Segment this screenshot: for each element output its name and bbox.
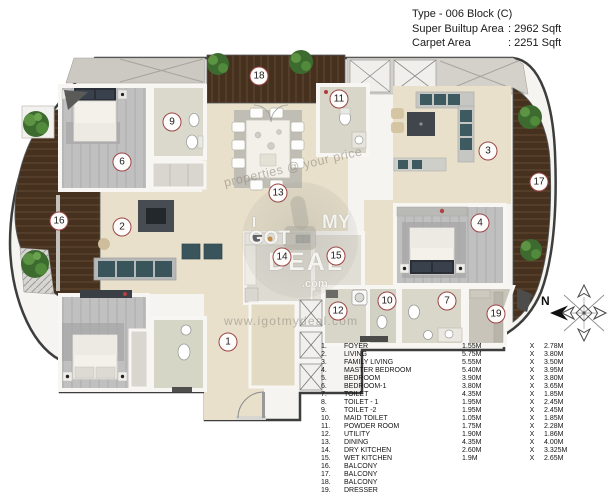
legend-row: 18.BALCONY	[321, 479, 606, 487]
super-builtup-label: Super Builtup Area	[412, 22, 508, 37]
legend-row: 14.DRY KITCHEN2.60MX3.325M	[321, 447, 606, 455]
legend-cell-num: 7.	[321, 391, 344, 399]
legend-cell-num: 15.	[321, 455, 344, 463]
legend-cell-x: X	[520, 375, 544, 383]
legend-cell-d2: 2.28M	[544, 423, 606, 431]
bedroom-room	[60, 290, 148, 390]
legend-cell-name: POWDER ROOM	[344, 423, 462, 431]
legend-cell-d1: 5.75M	[462, 351, 520, 359]
legend-cell-name: DRESSER	[344, 487, 462, 495]
legend-cell-num: 14.	[321, 447, 344, 455]
legend-cell-d1: 1.75M	[462, 423, 520, 431]
legend-cell-d2: 3.50M	[544, 359, 606, 367]
legend-cell-d1	[462, 487, 520, 495]
legend-cell-d1: 1.9M	[462, 455, 520, 463]
plant	[207, 53, 229, 75]
legend-cell-name: FAMILY LIVING	[344, 359, 462, 367]
legend-row: 12.UTILITY1.90MX1.86M	[321, 431, 606, 439]
legend-cell-name: LIVING	[344, 351, 462, 359]
legend-row: 2.LIVING5.75MX3.80M	[321, 351, 606, 359]
legend-cell-x: X	[520, 383, 544, 391]
entrance-lobby	[250, 303, 296, 387]
plant	[21, 250, 49, 278]
legend-cell-d1: 4.35M	[462, 391, 520, 399]
legend-row: 6.BEDROOM-13.80MX3.65M	[321, 383, 606, 391]
legend-cell-num: 8.	[321, 399, 344, 407]
plant	[289, 50, 313, 74]
plant	[520, 239, 542, 261]
legend-cell-d1: 1.95M	[462, 399, 520, 407]
legend-cell-x: X	[520, 343, 544, 351]
legend-cell-x: X	[520, 351, 544, 359]
legend-cell-num: 6.	[321, 383, 344, 391]
legend-cell-x: X	[520, 415, 544, 423]
carpet-area-label: Carpet Area	[412, 36, 508, 51]
legend-cell-x: X	[520, 439, 544, 447]
legend-cell-name: WET KITCHEN	[344, 455, 462, 463]
legend-cell-name: MASTER BEDROOM	[344, 367, 462, 375]
legend-cell-d1: 5.40M	[462, 367, 520, 375]
legend-cell-d1: 3.90M	[462, 375, 520, 383]
legend-row: 16.BALCONY	[321, 463, 606, 471]
legend-row: 9.TOILET -21.95MX2.45M	[321, 407, 606, 415]
north-compass-icon	[540, 283, 608, 343]
legend-cell-d2: 3.65M	[544, 383, 606, 391]
legend-row: 7.TOILET4.35MX1.85M	[321, 391, 606, 399]
legend-row: 17.BALCONY	[321, 471, 606, 479]
legend-cell-num: 1.	[321, 343, 344, 351]
legend-cell-x: X	[520, 455, 544, 463]
legend-row: 5.BEDROOM3.90MX3.80M	[321, 375, 606, 383]
legend-cell-num: 11.	[321, 423, 344, 431]
legend-cell-d2: 2.78M	[544, 343, 606, 351]
legend-row: 13.DINING4.35MX4.00M	[321, 439, 606, 447]
legend-cell-x: X	[520, 359, 544, 367]
legend-cell-num: 18.	[321, 479, 344, 487]
legend-cell-d2	[544, 463, 606, 471]
legend-cell-d1: 2.60M	[462, 447, 520, 455]
legend-cell-d1: 1.90M	[462, 431, 520, 439]
legend-cell-d2: 1.85M	[544, 415, 606, 423]
legend-cell-x: X	[520, 367, 544, 375]
legend-cell-name: BALCONY	[344, 471, 462, 479]
legend-cell-d2	[544, 487, 606, 495]
legend-cell-name: MAID TOILET	[344, 415, 462, 423]
plan-header: Type - 006 Block (C) Super Builtup Area …	[412, 7, 561, 51]
plant	[23, 111, 49, 137]
legend-cell-name: FOYER	[344, 343, 462, 351]
legend-row: 3.FAMILY LIVING5.55MX3.50M	[321, 359, 606, 367]
legend-cell-d2: 2.45M	[544, 399, 606, 407]
legend-cell-x: X	[520, 431, 544, 439]
legend-cell-num: 16.	[321, 463, 344, 471]
legend-cell-d2: 1.86M	[544, 431, 606, 439]
legend-cell-d1: 4.35M	[462, 439, 520, 447]
legend-cell-name: TOILET - 1	[344, 399, 462, 407]
legend-cell-d2: 3.80M	[544, 351, 606, 359]
service-band-left	[66, 58, 205, 83]
dresser-room	[467, 287, 513, 345]
legend-cell-d2: 2.65M	[544, 455, 606, 463]
legend-cell-x: X	[520, 399, 544, 407]
legend-cell-x: X	[520, 447, 544, 455]
legend-cell-x	[520, 471, 544, 479]
legend-cell-d1: 1.55M	[462, 343, 520, 351]
legend-cell-num: 13.	[321, 439, 344, 447]
legend-cell-d2: 4.00M	[544, 439, 606, 447]
toilet-room	[400, 287, 463, 345]
legend-row: 8.TOILET - 11.95MX2.45M	[321, 399, 606, 407]
floor-plan-page: { "header": { "line1": "Type - 006 Block…	[0, 0, 611, 500]
north-label: N	[541, 294, 550, 308]
legend-row: 15.WET KITCHEN1.9MX2.65M	[321, 455, 606, 463]
legend-cell-name: DINING	[344, 439, 462, 447]
legend-cell-d2	[544, 471, 606, 479]
legend-cell-d2: 2.45M	[544, 407, 606, 415]
legend-cell-num: 10.	[321, 415, 344, 423]
legend-row: 19.DRESSER	[321, 487, 606, 495]
powder-room	[318, 85, 368, 155]
closet	[130, 330, 148, 388]
legend-cell-num: 19.	[321, 487, 344, 495]
legend-cell-num: 5.	[321, 375, 344, 383]
legend-cell-x	[520, 487, 544, 495]
legend-cell-name: BALCONY	[344, 463, 462, 471]
legend-cell-num: 2.	[321, 351, 344, 359]
toilet-2-room	[152, 86, 205, 188]
legend-cell-num: 12.	[321, 431, 344, 439]
legend-cell-x: X	[520, 391, 544, 399]
legend-cell-d2: 1.85M	[544, 391, 606, 399]
legend-cell-x: X	[520, 423, 544, 431]
legend-cell-name: DRY KITCHEN	[344, 447, 462, 455]
legend-row: 11.POWDER ROOM1.75MX2.28M	[321, 423, 606, 431]
wardrobe	[152, 162, 205, 188]
legend-cell-d1	[462, 471, 520, 479]
threshold-step	[360, 336, 388, 342]
legend-cell-num: 3.	[321, 359, 344, 367]
legend-cell-d2: 3.80M	[544, 375, 606, 383]
master-bedroom-room	[395, 205, 505, 285]
legend-cell-num: 9.	[321, 407, 344, 415]
legend-cell-x	[520, 463, 544, 471]
legend-cell-d1	[462, 479, 520, 487]
legend-cell-name: TOILET	[344, 391, 462, 399]
legend-cell-d1	[462, 463, 520, 471]
legend-cell-name: BEDROOM	[344, 375, 462, 383]
super-builtup-value: : 2962 Sqft	[508, 22, 561, 37]
legend-cell-d2: 3.95M	[544, 367, 606, 375]
legend-cell-d2	[544, 479, 606, 487]
legend-cell-name: BALCONY	[344, 479, 462, 487]
toilet-1-room	[152, 318, 205, 392]
legend-cell-num: 4.	[321, 367, 344, 375]
legend-cell-d1: 5.55M	[462, 359, 520, 367]
legend-cell-d1: 1.95M	[462, 407, 520, 415]
legend-cell-d1: 1.05M	[462, 415, 520, 423]
legend-cell-x: X	[520, 407, 544, 415]
legend-row: 1.FOYER1.55MX2.78M	[321, 343, 606, 351]
legend-cell-num: 17.	[321, 471, 344, 479]
type-label: Type - 006 Block (C)	[412, 7, 512, 22]
legend-cell-name: TOILET -2	[344, 407, 462, 415]
legend-cell-x	[520, 479, 544, 487]
legend-row: 4.MASTER BEDROOM5.40MX3.95M	[321, 367, 606, 375]
shaft-column	[300, 300, 322, 390]
legend-cell-d2: 3.325M	[544, 447, 606, 455]
room-legend: 1.FOYER1.55MX2.78M2.LIVING5.75MX3.80M3.F…	[321, 343, 606, 495]
legend-cell-d1: 3.80M	[462, 383, 520, 391]
plant	[518, 105, 542, 129]
carpet-area-value: : 2251 Sqft	[508, 36, 561, 51]
legend-row: 10.MAID TOILET1.05MX1.85M	[321, 415, 606, 423]
legend-cell-name: BEDROOM-1	[344, 383, 462, 391]
dining-room	[232, 105, 304, 190]
legend-cell-name: UTILITY	[344, 431, 462, 439]
